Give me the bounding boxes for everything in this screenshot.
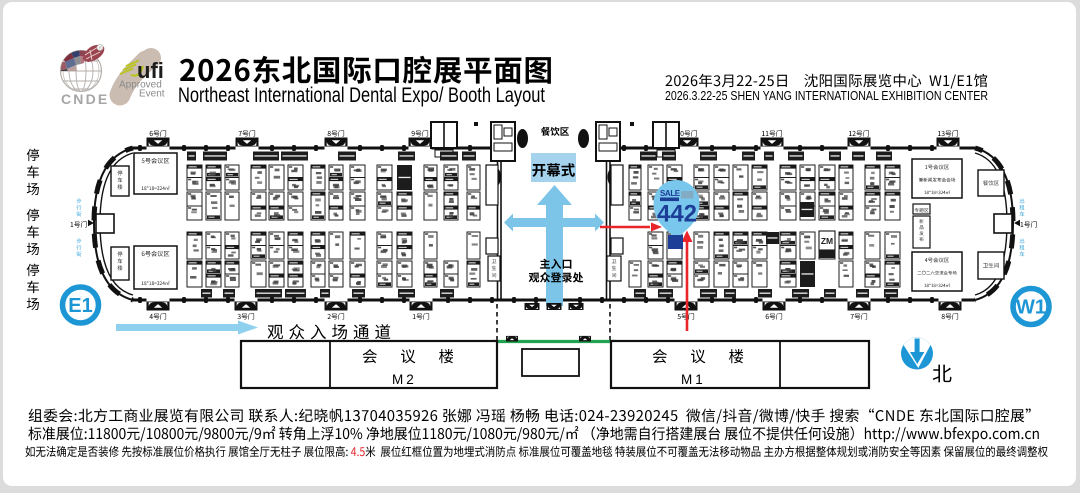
svg-text:442: 442 [657,201,697,228]
svg-text:ZM: ZM [821,236,833,246]
svg-text:CNDE: CNDE [61,91,109,107]
svg-text:W1: W1 [1016,297,1046,319]
svg-text:SALE: SALE [660,189,681,198]
svg-text:E1: E1 [68,295,92,317]
svg-text:M1: M1 [681,372,706,387]
svg-text:Northeast International Dental: Northeast International Dental Expo/ Boo… [178,83,545,107]
svg-text:M2: M2 [392,372,417,387]
svg-text:2026.3.22-25 SHEN YANG INTERN: 2026.3.22-25 SHEN YANG INTERNATIONAL EXH… [665,89,988,103]
svg-text:Event: Event [139,89,165,100]
